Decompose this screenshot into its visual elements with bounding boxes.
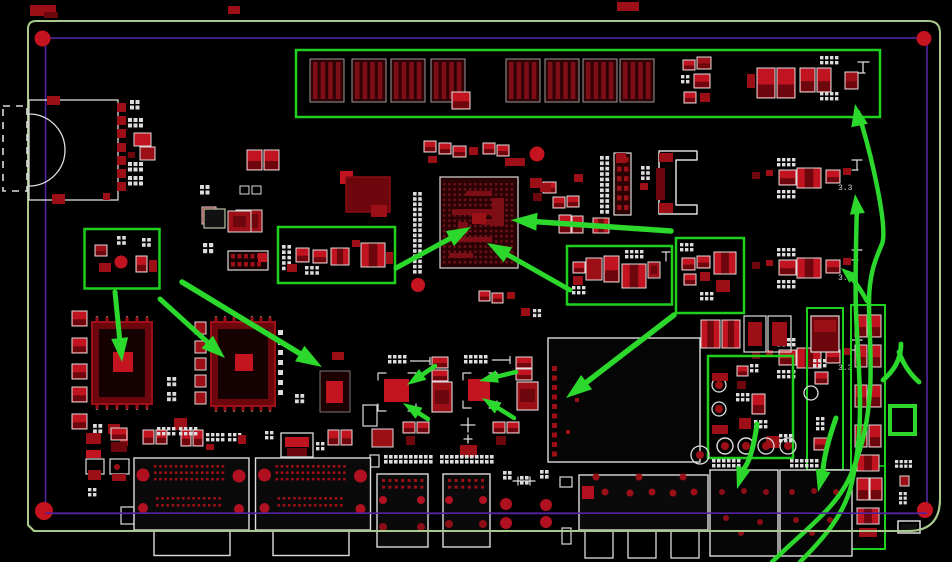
svg-text:3.3: 3.3 (838, 184, 853, 193)
